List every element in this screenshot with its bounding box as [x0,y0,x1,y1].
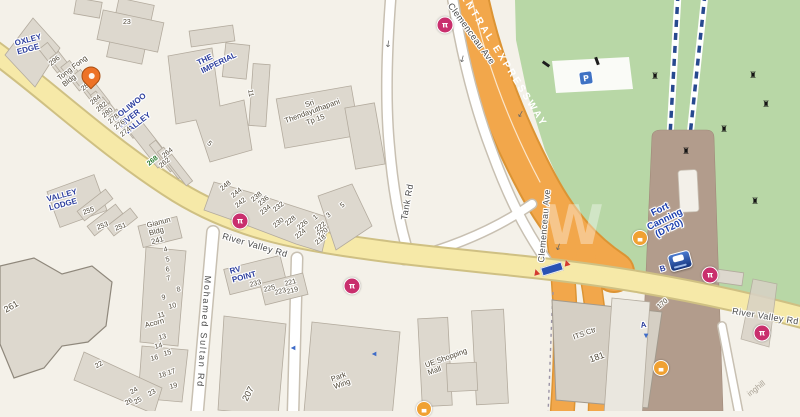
label-11: 11 [157,311,166,320]
label-valley-lodge: VALLEY LODGE [46,188,81,213]
label-6: 6 [165,266,171,275]
taxi-stand-icon[interactable]: ▄ [416,401,432,417]
label-224: 224 [294,228,308,241]
label-18: 18 [158,371,168,381]
label-its-ctr: ITS Ctr [572,326,597,342]
erp-gantry-icon[interactable]: π [344,278,361,295]
label-24: 24 [129,386,140,397]
label-170: 170 [656,297,670,311]
label-the-imperial: THE IMPERIAL [196,43,238,76]
label-19: 19 [169,382,179,392]
label-219: 219 [286,286,299,297]
traffic-flow-arrow-icon: ↓ [384,40,393,51]
traffic-flow-arrow-icon: ↓ [457,54,467,66]
erp-gantry-icon[interactable]: π [754,325,771,342]
shelter-icon [594,57,600,66]
label-mohamed-sultan-rd: Mohamed Sultan Rd [195,275,213,388]
label-5: 5 [339,202,347,211]
label-oxley-edge: OXLEY EDGE [14,33,45,57]
label-park-wing: Park Wing [330,370,352,392]
label-262: 262 [158,157,172,170]
label-11: 11 [245,89,254,98]
label-9: 9 [161,294,167,303]
monument-icon: ♜ [749,71,757,81]
label-16: 16 [150,354,160,364]
label-4: 4 [163,246,169,255]
parking-icon[interactable]: P [578,70,594,86]
label-232: 232 [272,201,286,214]
mrt-station-icon[interactable] [667,249,694,272]
label-1: 1 [312,214,320,223]
label-sri-thendayuthapani: Sri Thendayuthapani Tp 15 [281,90,344,133]
traffic-flow-arrow-icon: ↓ [514,109,526,121]
label-248: 248 [219,180,233,193]
label-river-valley-rd-west: River Valley Rd [221,231,289,259]
label-3: 3 [325,212,333,221]
label-13: 13 [158,333,168,343]
label-fort-canning-dt20: Fort Canning (DT20) [641,197,689,242]
erp-gantry-icon[interactable]: π [437,17,454,34]
label-gianun-bldg-241: Gianun Bldg 241 [146,216,176,247]
label-8: 8 [176,286,182,295]
label-22: 22 [94,360,105,371]
label-15: 15 [163,349,173,359]
shelter-icon [542,60,550,67]
label-268: 268 [146,155,160,168]
monument-icon: ♜ [651,72,659,82]
label-253: 253 [96,221,110,232]
label-inghill: inghill [746,379,768,399]
monument-icon: ♜ [720,125,728,135]
label-25: 25 [133,396,144,407]
label-7: 7 [166,275,172,284]
label-river-valley-rd-east: River Valley Rd [731,306,799,326]
labels-layer: OXLEY EDGETHE IMPERIALCOLIWOO RIVER VALL… [0,0,800,411]
label-181: 181 [588,350,606,365]
monument-icon: ♜ [762,100,770,110]
label-261: 261 [2,298,20,314]
label-5: 5 [165,256,171,265]
label-230: 230 [272,217,286,230]
label-218: 218 [314,234,328,247]
direction-arrow-icon: ▼ [644,333,649,340]
label-5: 5 [205,140,213,149]
erp-gantry-icon[interactable]: π [232,213,249,230]
label-tank-rd: Tank Rd [399,183,415,221]
label-23: 23 [147,388,158,399]
label-exit-a: A [640,321,647,331]
label-233: 233 [249,279,262,290]
map-canvas[interactable]: OXLEY EDGETHE IMPERIALCOLIWOO RIVER VALL… [0,0,800,411]
label-296: 296 [48,55,62,68]
label-255: 255 [82,206,96,217]
erp-sign-icon [540,261,564,276]
label-ue-shopping-mall: UE Shopping Mall [424,347,471,378]
label-23: 23 [123,19,131,27]
label-exit-b: B [659,265,667,275]
label-207: 207 [240,385,256,403]
label-251: 251 [114,222,128,233]
monument-icon: ♜ [751,197,759,207]
taxi-stand-icon[interactable]: ▄ [653,360,669,376]
taxi-stand-icon[interactable]: ▄ [632,230,648,246]
label-10: 10 [168,302,178,312]
monument-icon: ♜ [682,147,690,157]
direction-arrow-icon: ◀ [372,351,377,358]
direction-arrow-icon: ◀ [291,345,296,352]
label-17: 17 [167,368,177,378]
erp-gantry-icon[interactable]: π [702,267,719,284]
